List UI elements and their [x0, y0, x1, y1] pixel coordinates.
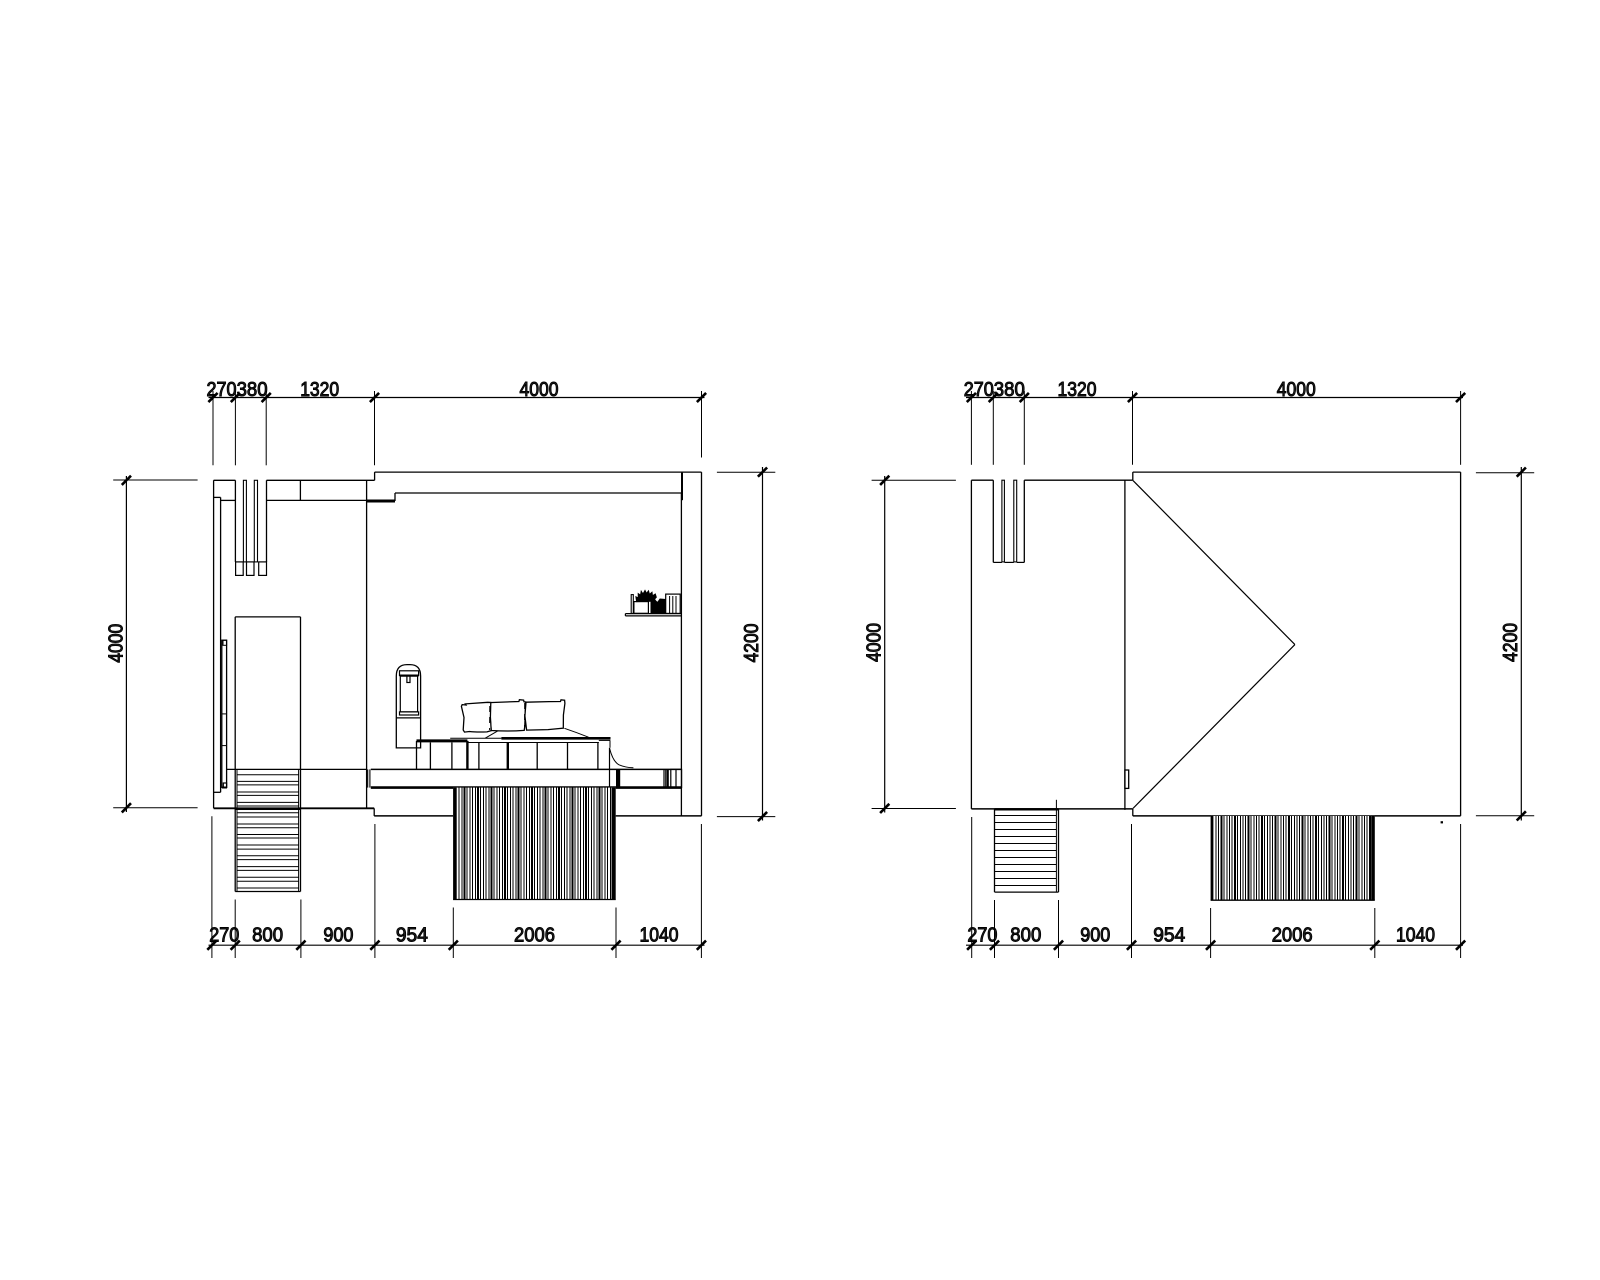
svg-text:380: 380 [237, 379, 268, 401]
svg-text:4000: 4000 [864, 623, 886, 662]
svg-text:900: 900 [323, 924, 353, 946]
svg-text:900: 900 [1080, 924, 1110, 946]
svg-text:4000: 4000 [105, 624, 127, 663]
svg-text:270: 270 [967, 924, 997, 946]
svg-text:270: 270 [207, 379, 237, 401]
svg-text:954: 954 [396, 924, 428, 946]
svg-text:1320: 1320 [1058, 379, 1097, 401]
svg-text:2006: 2006 [1272, 924, 1313, 946]
svg-text:4200: 4200 [1500, 623, 1522, 662]
svg-text:1320: 1320 [300, 379, 339, 401]
svg-text:800: 800 [1010, 924, 1041, 946]
svg-text:4000: 4000 [1277, 379, 1316, 401]
svg-text:380: 380 [994, 379, 1025, 401]
svg-text:1040: 1040 [640, 924, 679, 946]
svg-text:4200: 4200 [741, 624, 763, 663]
svg-text:954: 954 [1153, 924, 1185, 946]
svg-text:270: 270 [964, 379, 994, 401]
svg-text:1040: 1040 [1396, 924, 1435, 946]
svg-text:2006: 2006 [514, 924, 555, 946]
svg-text:270: 270 [209, 924, 239, 946]
svg-text:4000: 4000 [520, 379, 559, 401]
svg-text:800: 800 [252, 924, 283, 946]
